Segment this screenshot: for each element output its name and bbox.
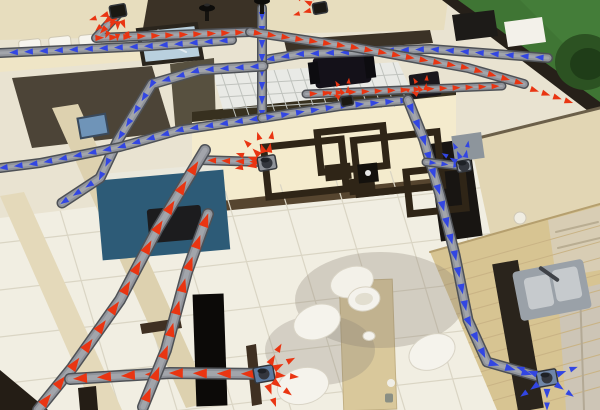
flower-head	[387, 379, 395, 387]
table-cup	[363, 332, 375, 341]
tr-white-fixture	[504, 17, 546, 47]
frame-dot	[365, 170, 371, 176]
stained-glass-panel	[77, 114, 108, 139]
wall-sconce	[514, 212, 526, 224]
wall-shelf-block-1	[324, 163, 352, 182]
tr-dark-fixture	[452, 10, 498, 41]
vase-pot	[385, 394, 393, 403]
hvac-airflow-render	[0, 0, 600, 410]
ventilation-3d-view	[0, 0, 600, 410]
bottom-dark-doorway	[78, 386, 98, 410]
black-door	[193, 293, 228, 406]
